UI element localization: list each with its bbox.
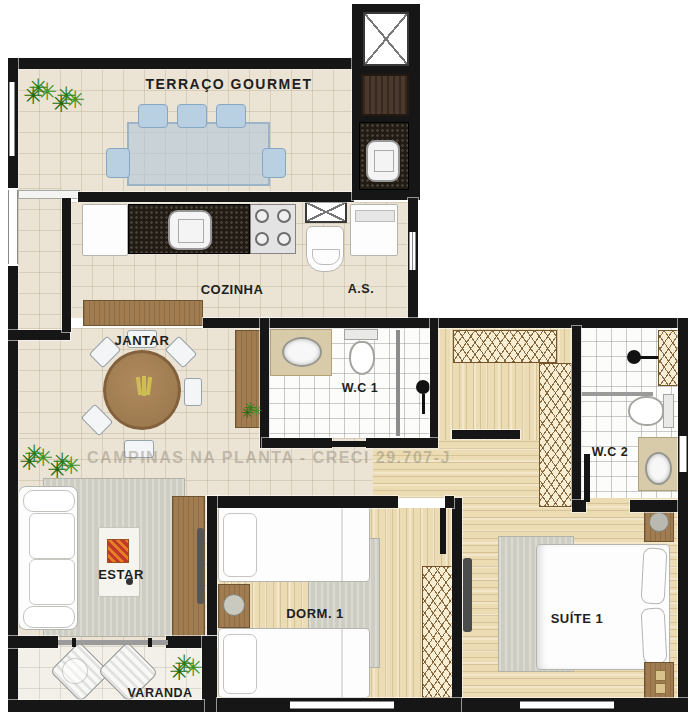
wall (452, 498, 462, 712)
wall (8, 636, 58, 648)
washing-machine (350, 204, 398, 256)
wall (8, 330, 70, 340)
table-decor (107, 539, 129, 563)
pillow (223, 634, 257, 694)
pillow (641, 607, 668, 664)
dorm1-wardrobe (422, 566, 453, 698)
wc1-shower-stem (422, 394, 425, 414)
burner-icon (255, 209, 269, 223)
wc2-shower-head-icon (627, 350, 641, 364)
terraco-chair (216, 104, 246, 128)
wall (260, 318, 269, 448)
pillow (641, 547, 668, 604)
kitchen-sink-basin (178, 219, 204, 243)
window (9, 82, 15, 156)
terraco-chair (262, 148, 286, 178)
wc1-toilet (349, 341, 375, 375)
wall (202, 636, 217, 712)
sofa (18, 486, 78, 630)
room-label-varanda: VARANDA (127, 686, 192, 700)
centerpiece (146, 377, 152, 395)
room-label-terraco: TERRAÇO GOURMET (145, 76, 312, 92)
wall (78, 192, 354, 202)
wc2-duct (658, 330, 679, 386)
window (679, 436, 687, 472)
burner-icon (255, 232, 269, 246)
nightstand-knob (655, 670, 666, 681)
room-label-jantar: JANTAR (115, 333, 170, 348)
suite-wardrobe (539, 363, 572, 507)
fridge (82, 204, 128, 256)
cooktop (250, 204, 296, 254)
wc2-toilet (628, 396, 664, 426)
grill (361, 74, 409, 116)
sofa-armrest (23, 490, 75, 512)
watermark-text: CAMPINAS NA PLANTA - CRECI 29.707-J (87, 449, 451, 467)
room-label-dorm1: DORM. 1 (286, 606, 344, 621)
sofa-cushion (29, 513, 75, 559)
room-label-as: A.S. (348, 282, 374, 296)
terraco-sink (366, 140, 400, 182)
wc1-shower-divider (396, 330, 400, 436)
wall (678, 318, 688, 712)
wall (62, 198, 71, 332)
sofa-armrest (23, 606, 75, 628)
room-label-suite1: SUÍTE 1 (551, 611, 604, 626)
suite-nightstand (644, 662, 674, 702)
floor-plan: TERRAÇO GOURMET COZINHA A.S. JANTAR W.C … (0, 0, 692, 720)
window (290, 701, 394, 709)
blanket-fold (341, 629, 343, 697)
terraco-chair (138, 104, 168, 128)
washing-machine-lid (355, 210, 395, 222)
laundry-tank (306, 226, 344, 272)
wall (8, 58, 354, 69)
terraco-dining-table (127, 122, 270, 186)
room-label-wc1: W.C 1 (342, 381, 379, 395)
burner-icon (277, 209, 291, 223)
estar-tv (197, 528, 204, 604)
hall-wardrobe (453, 330, 557, 363)
blanket-fold (341, 507, 343, 581)
wc1-shower-head-icon (416, 380, 430, 394)
counter-box (305, 201, 347, 223)
wall (207, 496, 217, 646)
terraco-chair (106, 148, 130, 178)
wall (262, 438, 332, 448)
wall (366, 438, 438, 448)
kitchen-sink (168, 210, 212, 250)
window (409, 232, 416, 270)
nightstand-knob (655, 683, 666, 694)
suite-tv (463, 558, 472, 632)
sofa-cushion (29, 559, 75, 605)
wc2-sink (645, 452, 672, 485)
coffee-table (98, 527, 140, 597)
wc1-door (330, 441, 368, 447)
terraco-sink-basin (374, 150, 394, 172)
laundry-tank-basin (312, 249, 340, 265)
varanda-side-table (62, 658, 88, 684)
round-dining-table (103, 350, 181, 430)
door-handle (72, 638, 76, 647)
door-handle (148, 638, 152, 647)
pillow (223, 513, 257, 577)
room-label-cozinha: COZINHA (201, 282, 264, 297)
terraco-chair (177, 104, 207, 128)
burner-icon (277, 232, 291, 246)
wall (203, 318, 688, 328)
wall (8, 700, 204, 712)
window (520, 701, 614, 709)
dorm1-door (440, 508, 446, 554)
dorm1-lamp (223, 594, 245, 616)
room-label-estar: ESTAR (98, 567, 144, 582)
room-label-wc2: W.C 2 (592, 445, 629, 459)
service-shaft (363, 12, 409, 66)
wc1-toilet-tank (344, 329, 378, 340)
suite-lamp (649, 512, 669, 532)
wall (445, 496, 454, 508)
wc1-sink (282, 337, 322, 367)
bar-counter (83, 300, 203, 326)
single-bed (218, 506, 370, 582)
wall (430, 318, 438, 440)
suite-door (452, 430, 520, 439)
wc2-door (584, 454, 590, 502)
railing-window (8, 190, 18, 264)
single-bed (218, 628, 370, 698)
wall (207, 496, 398, 508)
wc2-toilet-tank (663, 394, 674, 428)
wall (572, 326, 581, 502)
dining-chair (184, 378, 202, 406)
